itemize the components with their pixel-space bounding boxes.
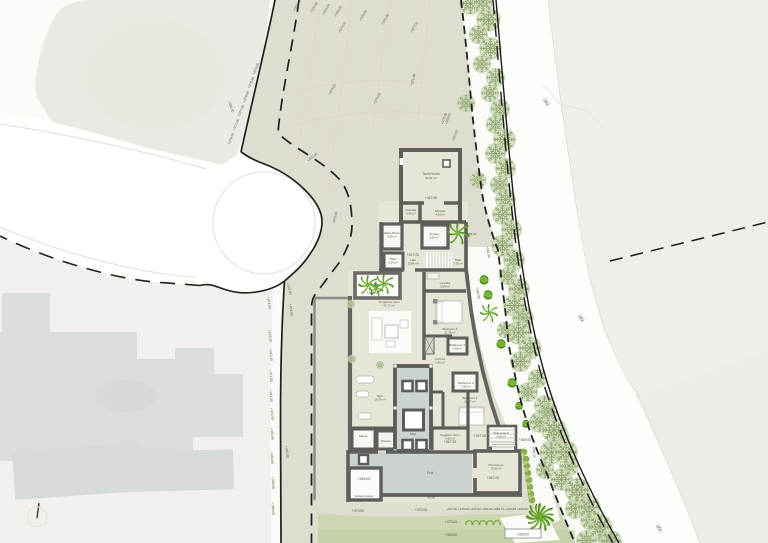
- svg-text:+369.00: +369.00: [271, 503, 276, 515]
- svg-text:16.36 m²: 16.36 m²: [374, 398, 385, 402]
- svg-text:+365.00: +365.00: [466, 232, 477, 236]
- svg-text:Patio: Patio: [410, 432, 417, 436]
- svg-text:+375.00: +375.00: [445, 520, 457, 524]
- svg-text:34.61 m²: 34.61 m²: [425, 176, 437, 180]
- svg-text:21.36 m²: 21.36 m²: [444, 331, 455, 335]
- svg-text:+367.00: +367.00: [487, 476, 499, 480]
- svg-text:2.56 m²: 2.56 m²: [435, 361, 445, 365]
- svg-text:+370.00: +370.00: [415, 508, 427, 512]
- svg-text:4.28 m²: 4.28 m²: [452, 347, 462, 351]
- svg-text:+370.00 +370.00 +369.90 +369.8: +370.00 +370.00 +369.90 +369.80 +369.70 …: [446, 507, 528, 511]
- svg-text:15.84 m²: 15.84 m²: [407, 262, 418, 266]
- svg-text:1.60 m²: 1.60 m²: [461, 385, 471, 389]
- svg-text:4.04 m²: 4.04 m²: [435, 213, 445, 217]
- svg-text:Sunken lounge: Sunken lounge: [355, 494, 374, 498]
- svg-text:+349.00: +349.00: [367, 291, 379, 295]
- svg-text:2.24 m²: 2.24 m²: [388, 261, 398, 265]
- svg-text:Sauna: Sauna: [359, 434, 368, 438]
- svg-text:4.00 m²: 4.00 m²: [387, 235, 397, 239]
- svg-text:Shower: Shower: [381, 439, 391, 443]
- svg-text:5.80 m²: 5.80 m²: [406, 212, 416, 216]
- svg-text:+369.50: +369.50: [271, 477, 276, 489]
- svg-text:+347.00: +347.00: [407, 253, 419, 257]
- svg-text:+347.00: +347.00: [474, 434, 486, 438]
- svg-text:+367.00: +367.00: [425, 196, 437, 200]
- svg-text:13.09 m²: 13.09 m²: [490, 467, 501, 471]
- svg-text:+367.00: +367.00: [444, 440, 456, 444]
- svg-text:+369.80: +369.80: [270, 452, 275, 464]
- svg-text:7.50 m²: 7.50 m²: [453, 262, 463, 266]
- svg-text:5.84 m²: 5.84 m²: [440, 285, 450, 289]
- svg-text:42.71 m²: 42.71 m²: [383, 304, 394, 308]
- svg-text:23.47 m²: 23.47 m²: [464, 400, 475, 404]
- svg-text:64.66: 64.66: [427, 496, 435, 500]
- svg-text:4.09 m²: 4.09 m²: [496, 435, 506, 439]
- svg-text:+369.00: +369.00: [519, 438, 531, 442]
- svg-text:+369.00: +369.00: [517, 533, 529, 537]
- svg-text:+355.00: +355.00: [358, 477, 370, 481]
- svg-text:+370.00: +370.00: [352, 509, 364, 513]
- svg-text:+369.00: +369.00: [445, 533, 457, 537]
- svg-text:2.06 m²: 2.06 m²: [429, 236, 439, 240]
- svg-text:Pool: Pool: [427, 471, 434, 475]
